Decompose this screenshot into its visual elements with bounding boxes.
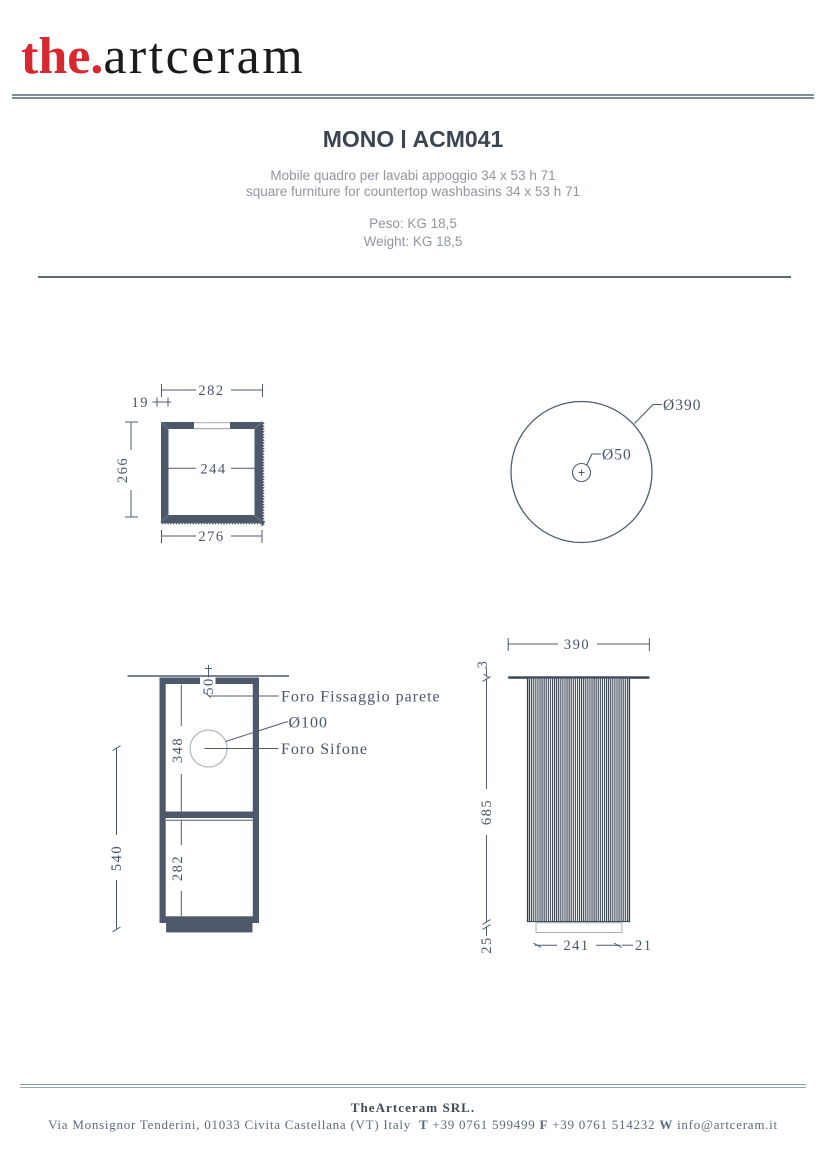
svg-text:21: 21: [635, 938, 653, 954]
svg-text:282: 282: [170, 855, 186, 881]
svg-text:244: 244: [200, 461, 226, 477]
svg-text:19: 19: [132, 395, 150, 411]
svg-text:Foro Fissaggio parete: Foro Fissaggio parete: [281, 689, 441, 706]
svg-text:276: 276: [198, 529, 224, 545]
svg-text:540: 540: [109, 845, 125, 871]
svg-text:266: 266: [115, 457, 131, 483]
svg-text:Ø390: Ø390: [663, 397, 701, 414]
svg-text:282: 282: [198, 383, 224, 399]
svg-text:Ø100: Ø100: [289, 715, 329, 732]
svg-text:Ø50: Ø50: [602, 447, 632, 464]
svg-text:50: 50: [201, 677, 217, 695]
svg-text:3: 3: [475, 660, 491, 669]
svg-text:241: 241: [563, 938, 589, 954]
svg-text:685: 685: [479, 799, 495, 825]
svg-text:348: 348: [170, 737, 186, 763]
svg-text:25: 25: [479, 936, 495, 954]
svg-text:Foro Sifone: Foro Sifone: [281, 741, 368, 758]
svg-text:390: 390: [564, 637, 590, 653]
